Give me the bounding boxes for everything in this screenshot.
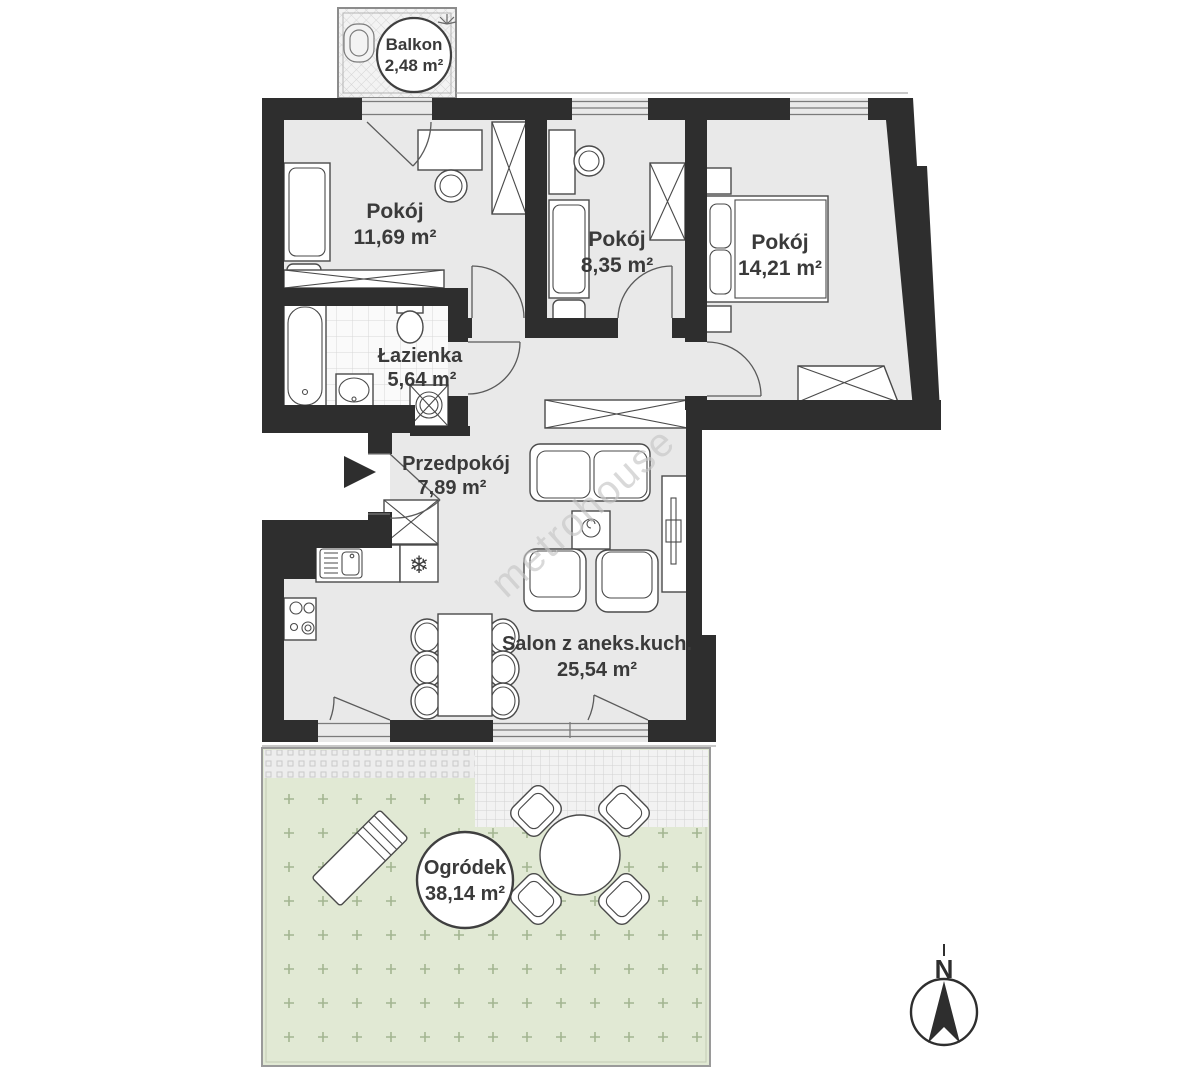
garden-label: Ogródek 38,14 m² [417, 832, 513, 928]
stove-icon [284, 598, 316, 640]
bed-icon [284, 163, 330, 261]
bathtub-icon [284, 302, 326, 410]
terrace [475, 750, 708, 827]
living-room-area: 25,54 m² [557, 659, 637, 681]
paved-strip [264, 750, 475, 778]
balcony-name: Balkon [386, 35, 443, 54]
bathroom-name: Łazienka [378, 345, 463, 367]
tv-unit-icon [662, 476, 688, 592]
dining-table-icon [438, 614, 492, 716]
garden-area: Ogródek 38,14 m² [262, 748, 710, 1066]
bed-icon [549, 200, 589, 298]
radiator-icon [284, 270, 444, 288]
tall-cabinet-icon [384, 500, 438, 544]
armchair-icon [596, 550, 658, 612]
room2-name: Pokój [588, 228, 645, 251]
garden-round-table-icon [540, 815, 620, 895]
balcony-area-value: 2,48 m² [385, 56, 444, 75]
nightstand-icon [705, 168, 731, 194]
room1-area: 11,69 m² [354, 226, 437, 249]
compass: N [911, 944, 977, 1045]
washing-machine-icon [410, 385, 448, 426]
balcony-label: Balkon 2,48 m² [377, 18, 451, 92]
balcony-area: Balkon 2,48 m² [338, 8, 456, 98]
room3-area: 14,21 m² [738, 257, 822, 280]
wardrobe-icon [650, 163, 685, 240]
hallway-name: Przedpokój [402, 453, 510, 475]
garden-area-value: 38,14 m² [425, 883, 505, 905]
wardrobe-icon [492, 122, 526, 214]
north-arrow-icon [928, 981, 960, 1043]
floor-plan: Ogródek 38,14 m² Balkon 2,48 m² [0, 0, 1188, 1080]
fridge-icon: ❄ [400, 545, 438, 582]
room2-area: 8,35 m² [581, 254, 653, 277]
svg-text:❄: ❄ [409, 553, 429, 579]
dining-set [411, 614, 519, 719]
desk-icon [549, 130, 575, 194]
nightstand-icon [705, 306, 731, 332]
wardrobe-icon [798, 366, 898, 402]
coiled-hose-icon [344, 24, 374, 62]
garden-name: Ogródek [424, 857, 507, 879]
entrance-arrow-icon [344, 456, 376, 488]
living-room-name: Salon z aneks.kuch. [502, 633, 692, 655]
hallway-area: 7,89 m² [418, 477, 487, 499]
room1-name: Pokój [366, 200, 423, 223]
hallway-wardrobe-icon [545, 400, 688, 428]
floor-plan-page: Ogródek 38,14 m² Balkon 2,48 m² [0, 0, 1188, 1080]
desk-icon [418, 130, 482, 170]
room3-name: Pokój [751, 231, 808, 254]
toilet-icon [397, 302, 423, 343]
bathroom-area: 5,64 m² [388, 369, 457, 391]
